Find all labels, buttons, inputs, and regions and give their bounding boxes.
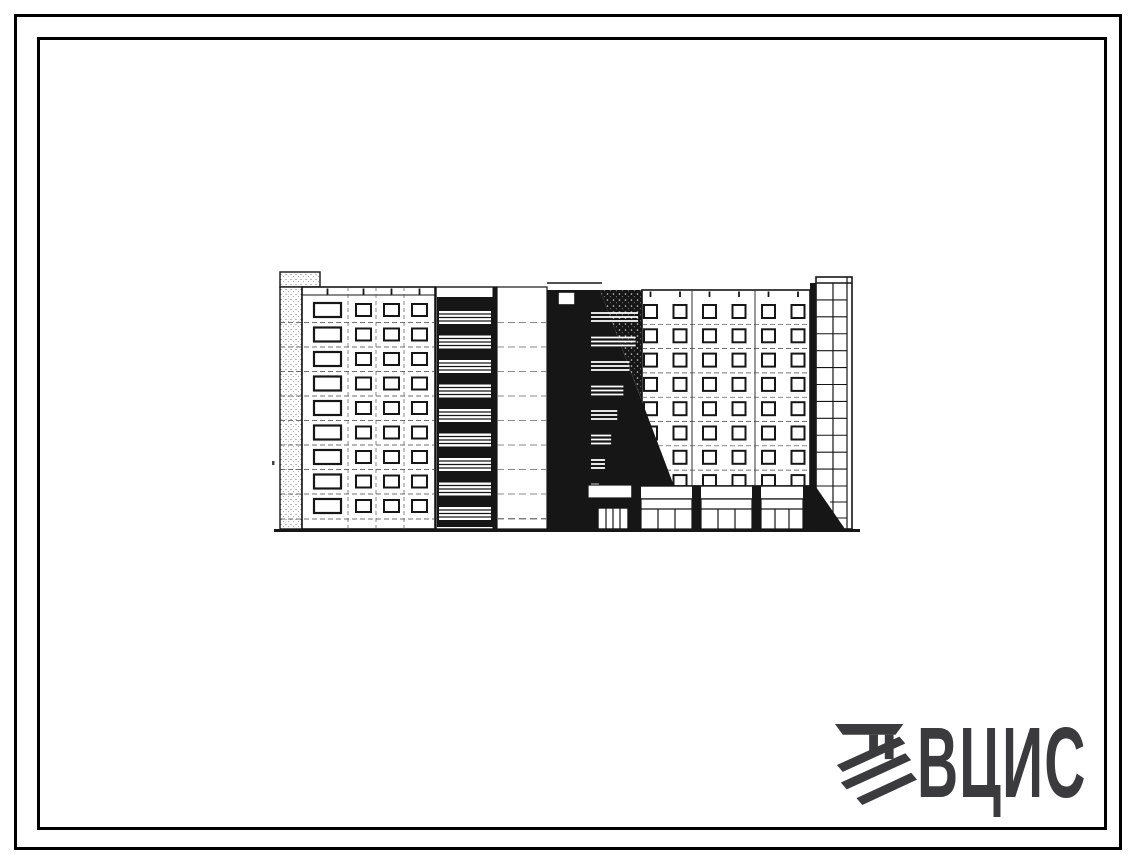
- vcis-logo: ВЦИС: [832, 716, 1092, 812]
- building-elevation-drawing: [270, 268, 865, 548]
- vcis-logo-icon: [832, 722, 920, 806]
- vcis-logo-text: ВЦИС: [917, 713, 1086, 813]
